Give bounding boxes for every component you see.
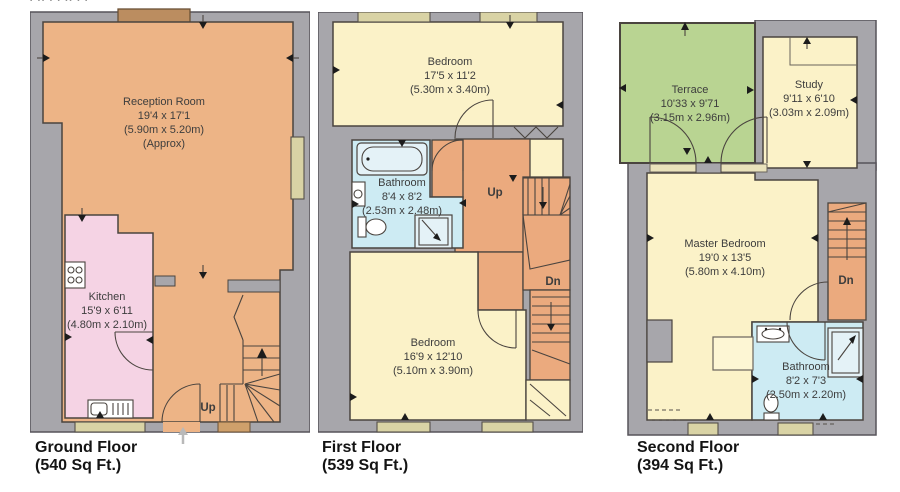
room-size-imperial: 19'0 x 13'5 [684, 251, 765, 265]
bedroom-front-label: Bedroom 17'5 x 11'2 (5.30m x 3.40m) [410, 55, 490, 97]
study-label: Study 9'11 x 6'10 (3.03m x 2.09m) [769, 78, 849, 120]
wall-stub-hall [155, 276, 175, 286]
room-name: Master Bedroom [684, 237, 765, 251]
under-stairs-cupboard [526, 380, 570, 420]
right-wall-window [291, 137, 304, 199]
room-size-imperial: 10'33 x 9'71 [650, 97, 730, 111]
floor-area: (394 Sq Ft.) [637, 457, 739, 475]
reception-room-label: Reception Room 19'4 x 17'1 (5.90m x 5.20… [123, 95, 205, 151]
room-size-metric: (3.03m x 2.09m) [769, 106, 849, 120]
bedroom-back-label: Bedroom 16'9 x 12'10 (5.10m x 3.90m) [393, 336, 473, 378]
room-size-imperial: 9'11 x 6'10 [769, 92, 849, 106]
room-size-metric: (5.90m x 5.20m) [123, 123, 205, 137]
room-name: Study [769, 78, 849, 92]
bedroom-furniture [713, 337, 753, 370]
room-size-metric: (4.80m x 2.10m) [67, 318, 147, 332]
room-size-metric: (3.15m x 2.96m) [650, 111, 730, 125]
stove-icon [65, 262, 85, 288]
room-size-metric: (5.10m x 3.90m) [393, 364, 473, 378]
room-size-metric: (2.50m x 2.20m) [766, 388, 846, 402]
room-name: Bathroom [362, 176, 442, 190]
kitchen-window [75, 422, 145, 432]
room-name: Kitchen [67, 290, 147, 304]
room-size-metric: (2.53m x 2.48m) [362, 204, 442, 218]
floor-area: (540 Sq Ft.) [35, 457, 137, 475]
bay-window [118, 9, 190, 23]
room-size-imperial: 15'9 x 6'11 [67, 304, 147, 318]
master-bedroom-label: Master Bedroom 19'0 x 13'5 (5.80m x 4.10… [684, 237, 765, 279]
room-name: Bathroom [766, 360, 846, 374]
stairs-down-label: Dn [545, 276, 560, 288]
room-size-imperial: 19'4 x 17'1 [123, 109, 205, 123]
ground-floor-plan: Reception Room 19'4 x 17'1 (5.90m x 5.20… [30, 12, 310, 432]
room-name: Bedroom [393, 336, 473, 350]
terrace-label: Terrace 10'33 x 9'71 (3.15m x 2.96m) [650, 83, 730, 125]
kitchen-label: Kitchen 15'9 x 6'11 (4.80m x 2.10m) [67, 290, 147, 332]
ground-floor-drawing [30, 8, 310, 446]
room-size-imperial: 17'5 x 11'2 [410, 69, 490, 83]
sink-icon [757, 326, 789, 342]
floor-name: Second Floor [637, 439, 739, 457]
room-size-metric: (5.80m x 4.10m) [684, 265, 765, 279]
bathtub-icon [357, 143, 427, 175]
stair-threshold [218, 422, 250, 432]
first-floor-plan: Bedroom 17'5 x 11'2 (5.30m x 3.40m) Bath… [318, 12, 583, 432]
room-note: (Approx) [123, 137, 205, 151]
second-floor-plan: Terrace 10'33 x 9'71 (3.15m x 2.96m) Stu… [618, 20, 878, 435]
floor-name: Ground Floor [35, 439, 137, 457]
room-name: Bedroom [410, 55, 490, 69]
second-floor-caption: Second Floor (394 Sq Ft.) [637, 439, 739, 475]
room-size-imperial: 8'2 x 7'3 [766, 374, 846, 388]
stairs-down-label: Dn [838, 275, 853, 287]
room-name: Terrace [650, 83, 730, 97]
toilet-icon [358, 217, 386, 237]
ground-floor-caption: Ground Floor (540 Sq Ft.) [35, 439, 137, 475]
room-name: Reception Room [123, 95, 205, 109]
stairs-up-label: Up [200, 402, 215, 414]
stairs-up-label: Up [487, 187, 502, 199]
room-size-metric: (5.30m x 3.40m) [410, 83, 490, 97]
bathroom-label: Bathroom 8'2 x 7'3 (2.50m x 2.20m) [766, 360, 846, 402]
first-floor-caption: First Floor (539 Sq Ft.) [322, 439, 408, 475]
floorplan-canvas: ▪ ▪▪ ▪ ▪ ▪▪ ▪ ▪ [0, 0, 900, 492]
shower-icon [415, 215, 452, 248]
room-size-imperial: 16'9 x 12'10 [393, 350, 473, 364]
kitchen-sink-icon [88, 400, 133, 418]
cropped-top-marks: ▪ ▪▪ ▪ ▪ ▪▪ ▪ ▪ [30, 0, 89, 4]
floor-name: First Floor [322, 439, 408, 457]
bathroom-label: Bathroom 8'4 x 8'2 (2.53m x 2.48m) [362, 176, 442, 218]
chimney-breast [647, 320, 672, 362]
floor-area: (539 Sq Ft.) [322, 457, 408, 475]
wall-stub-stairs [228, 280, 280, 292]
room-size-imperial: 8'4 x 8'2 [362, 190, 442, 204]
staircase-down [828, 203, 866, 320]
